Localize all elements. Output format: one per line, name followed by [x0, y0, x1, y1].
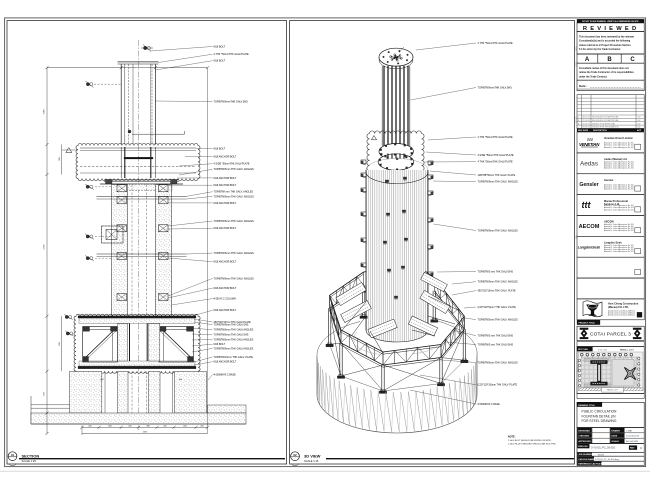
svg-text:SECTION: SECTION: [22, 453, 40, 458]
svg-text:9.012: 9.012: [575, 235, 577, 239]
svg-text:AECOM: AECOM: [604, 220, 613, 224]
svg-text:35342: 35342: [575, 62, 577, 67]
svg-text:TOP/BTM/6mm THK GALV.ANGLES: TOP/BTM/6mm THK GALV.ANGLES: [214, 338, 254, 341]
svg-text:M16 ANCHOR BOLT: M16 ANCHOR BOLT: [214, 202, 237, 205]
svg-text:4 THK *50mmTHK GALV.PLATE: 4 THK *50mmTHK GALV.PLATE: [214, 53, 250, 56]
svg-text:TOP/BTM/6mm THK GALV.ANGLES: TOP/BTM/6mm THK GALV.ANGLES: [214, 347, 254, 350]
svg-text:status referred to in Proj: status referred to in Project Procedure …: [579, 44, 631, 47]
svg-text:DWG NO: DWG NO: [578, 446, 588, 448]
svg-text:NOTE:: NOTE:: [508, 436, 516, 439]
svg-text:under the Trade Contract.: under the Trade Contract.: [579, 75, 608, 78]
svg-text:4 THK *50mmTHK GALV.PLATE: 4 THK *50mmTHK GALV.PLATE: [478, 136, 514, 139]
svg-text:1788: 1788: [44, 109, 46, 115]
svg-text:PUBLIC CIRCULATION: PUBLIC CIRCULATION: [582, 410, 618, 414]
svg-text:TOP/BTM/6mm THK GALV.ANGLES: TOP/BTM/6mm THK GALV.ANGLES: [214, 329, 254, 332]
svg-text:TOP/BTM/9mm THK GALV. ANGLES: TOP/BTM/9mm THK GALV. ANGLES: [478, 281, 519, 284]
svg-text:VENETIAN: VENETIAN: [579, 142, 600, 147]
svg-text:REVIEWED: REVIEWED: [583, 26, 640, 32]
svg-text:2700: 2700: [44, 244, 46, 250]
svg-text:TOP/BTM/6mm THK GALV. ANGLES: TOP/BTM/6mm THK GALV. ANGLES: [214, 168, 255, 171]
svg-text:FOR STEEL DRAWING: FOR STEEL DRAWING: [582, 419, 617, 423]
svg-text:# 600MM R.C BASE: # 600MM R.C BASE: [214, 373, 237, 376]
svg-text:Gensler: Gensler: [604, 178, 614, 182]
svg-text:TOP/BTM/6mmTHK GALV.SHS: TOP/BTM/6mmTHK GALV.SHS: [478, 86, 513, 89]
svg-text:Aedas (Macau) Ltd.: Aedas (Macau) Ltd.: [604, 157, 628, 161]
svg-text:M16 ANCHOR BOLT: M16 ANCHOR BOLT: [214, 261, 237, 264]
svg-text:M16 ANCHOR BOLT: M16 ANCHOR BOLT: [214, 155, 237, 158]
svg-text:4 SIDE *50mmTHK GALV.PLATE: 4 SIDE *50mmTHK GALV.PLATE: [214, 163, 250, 166]
svg-text:A: A: [585, 57, 590, 63]
svg-text:Gensler: Gensler: [579, 182, 598, 188]
svg-text:M16 ANCHOR BOLT: M16 ANCHOR BOLT: [214, 227, 237, 230]
svg-text:DESIGNED: DESIGNED: [578, 430, 590, 432]
svg-text:relieve the Trade Contractor o: relieve the Trade Contractor of its resp…: [579, 71, 635, 74]
svg-text:TOP/BTM/5 mm THK GALV.SHS: TOP/BTM/5 mm THK GALV.SHS: [478, 335, 514, 338]
svg-text:TOP/BTM/5 mm THK GALV.SHS: TOP/BTM/5 mm THK GALV.SHS: [478, 270, 514, 273]
svg-text:PROJECT TITLE: PROJECT TITLE: [579, 323, 596, 325]
svg-text:4 THK *50mmTHK GALV.PLATE: 4 THK *50mmTHK GALV.PLATE: [478, 42, 514, 45]
svg-text:TOP/BTM/6mm THK GALV. ANGLES: TOP/BTM/6mm THK GALV. ANGLES: [214, 252, 255, 255]
svg-text:ISSUED FOR INFORMATION: ISSUED FOR INFORMATION: [592, 126, 619, 129]
svg-text:LangdonSeah: LangdonSeah: [578, 245, 600, 249]
svg-text:TOP/BTM/5mm THK GALV. ANGLES: TOP/BTM/5mm THK GALV. ANGLES: [478, 319, 519, 322]
svg-text:TOP/BTM/ mm THK GALV. ANGLES: TOP/BTM/ mm THK GALV. ANGLES: [214, 191, 254, 194]
svg-text:P1808: P1808: [575, 46, 577, 51]
svg-text:12B/T/B*50mm THK GALV. PLATE: 12B/T/B*50mm THK GALV. PLATE: [478, 174, 516, 177]
svg-text:22.09.12: 22.09.12: [582, 120, 591, 122]
svg-text:REFERENCE CAD FILE NAME: REFERENCE CAD FILE NAME: [578, 462, 607, 465]
svg-text:M16 ANCHOR BOLT: M16 ANCHOR BOLT: [214, 361, 237, 364]
svg-text:AECOM: AECOM: [579, 224, 600, 230]
svg-text:Aedas: Aedas: [580, 161, 598, 168]
svg-text:CAD FILE NAME: CAD FILE NAME: [578, 458, 594, 461]
svg-text:M16 ANCHOR BOLT: M16 ANCHOR BOLT: [214, 287, 237, 290]
svg-text:2. ALL FILLET WELDED SHOULD BE: 2. ALL FILLET WELDED SHOULD BE 3mm THK.: [508, 442, 556, 445]
svg-text:# 600MM R.C BASE: # 600MM R.C BASE: [478, 403, 501, 406]
svg-text:SCALE 1:25: SCALE 1:25: [22, 459, 37, 463]
svg-text:1. ALL BOLT SHOULD BE FIXING O: 1. ALL BOLT SHOULD BE FIXING ON SITE.: [508, 439, 552, 442]
svg-text:(120*120*10)mm THK GALV. PLATE: (120*120*10)mm THK GALV. PLATE: [478, 384, 518, 387]
svg-text:M16 BOLT: M16 BOLT: [214, 60, 226, 63]
svg-text:450*220*10mm THK GALV. PLATE: 450*220*10mm THK GALV. PLATE: [478, 290, 516, 293]
svg-text:LW: LW: [638, 123, 641, 125]
svg-text:RE-ISSUED FOR APPROVAL: RE-ISSUED FOR APPROVAL: [592, 116, 620, 119]
svg-text:# 550 R.C COLUMN: # 550 R.C COLUMN: [214, 298, 236, 301]
svg-text:M16 ANCHOR BOLT: M16 ANCHOR BOLT: [214, 184, 237, 187]
svg-text:TOP/BTM/9mm THK GALV. ANGLES: TOP/BTM/9mm THK GALV. ANGLES: [478, 229, 519, 232]
svg-text:C: C: [640, 446, 642, 450]
svg-text:3D VIEW: 3D VIEW: [304, 453, 321, 458]
svg-text:FOUNTAIN DETAIL (IN: FOUNTAIN DETAIL (IN: [582, 414, 617, 418]
svg-text:08.10.12: 08.10.12: [582, 117, 591, 119]
svg-text:(120*120*5)mm THK GALV. PLATE: (120*120*5)mm THK GALV. PLATE: [478, 306, 517, 309]
svg-text:Consultant(s)(s) and is acc: Consultant(s)(s) and is accorded the fol…: [579, 40, 631, 43]
svg-text:CHECKED: CHECKED: [578, 436, 589, 438]
svg-text:KEY PLAN: KEY PLAN: [578, 348, 588, 351]
svg-text:zzz: zzz: [586, 137, 593, 142]
svg-text:APPROVED: APPROVED: [578, 440, 591, 443]
svg-text:ISSUED FOR APPROVAL: ISSUED FOR APPROVAL: [592, 122, 616, 125]
svg-text:4 THK *50mmTHK GALV.PLATE: 4 THK *50mmTHK GALV.PLATE: [478, 161, 514, 164]
svg-text:JOB NUMBER: JOB NUMBER: [578, 454, 592, 456]
svg-text:COTAI PARCEL 3: COTAI PARCEL 3: [590, 331, 631, 337]
svg-text:RE-ISSUED FOR APPROVAL: RE-ISSUED FOR APPROVAL: [592, 119, 620, 122]
svg-text:TOP/BTM/6mm THK GALV. ANGLES: TOP/BTM/6mm THK GALV. ANGLES: [214, 195, 255, 198]
svg-text:PARCEL 1, LOT 1: PARCEL 1, LOT 1: [620, 348, 634, 351]
svg-text:TOP/BTM/5 mm THK GALV.SHS: TOP/BTM/5 mm THK GALV.SHS: [478, 344, 514, 347]
svg-text:TOP/BTM/6mmTHK GALV.SHS: TOP/BTM/6mmTHK GALV.SHS: [214, 101, 249, 104]
svg-text:TOP/BTM/6mm THK GALV. ANGLES: TOP/BTM/6mm THK GALV. ANGLES: [214, 277, 255, 280]
svg-text:3-YS-05_PC_05-010.dwg: 3-YS-05_PC_05-010.dwg: [595, 459, 620, 461]
svg-text:TOP/BTM/6mm THK GALV. ANGLES: TOP/BTM/6mm THK GALV. ANGLES: [214, 220, 255, 223]
svg-text:TOP/BTM/6mm THK GALV.SHS: TOP/BTM/6mm THK GALV.SHS: [214, 334, 249, 337]
svg-text:ttt: ttt: [582, 200, 592, 210]
svg-text:4 SIDE *50mmTHK GALV.PLATE: 4 SIDE *50mmTHK GALV.PLATE: [478, 154, 514, 157]
svg-text:L.WAI: L.WAI: [626, 429, 632, 432]
svg-text:(Macau) CO. LTD.: (Macau) CO. LTD.: [608, 306, 629, 309]
svg-text:TOP/BTM/9mm THK GALV. ANGLES: TOP/BTM/9mm THK GALV. ANGLES: [478, 181, 519, 184]
svg-text:SCALE 1:15: SCALE 1:15: [304, 459, 319, 463]
svg-text:Consultant review of this: Consultant review of this document does …: [579, 67, 629, 70]
svg-text:TOP/BTM/10mm THK GALV. PLATE: TOP/BTM/10mm THK GALV. PLATE: [214, 356, 254, 359]
svg-text:SCALE: SCALE: [611, 440, 619, 443]
svg-text:DATE: DATE: [611, 435, 617, 438]
svg-text:TOP/BTM/5mm THK GALV. ANGLES: TOP/BTM/5mm THK GALV. ANGLES: [478, 361, 519, 364]
svg-text:01: 01: [11, 453, 15, 457]
svg-text:LW: LW: [638, 120, 641, 122]
svg-text:14-JUN-2013: 14-JUN-2013: [626, 436, 640, 438]
svg-text:M16 ANCHOR BOLT: M16 ANCHOR BOLT: [214, 309, 237, 312]
svg-text:M16 ANCHOR BOLT: M16 ANCHOR BOLT: [214, 177, 237, 180]
svg-text:This document has been reviewe: This document has been reviewed by the r…: [579, 35, 634, 38]
svg-text:AS SHOWN: AS SHOWN: [626, 440, 638, 443]
svg-text:C: C: [630, 57, 635, 63]
svg-text:Venetian Orient Limited: Venetian Orient Limited: [604, 136, 633, 140]
svg-text:REV: REV: [630, 448, 635, 450]
svg-text:3-YS-05_PC_05-010: 3-YS-05_PC_05-010: [591, 446, 616, 450]
svg-text:Date :: Date :: [579, 84, 587, 88]
svg-text:M16 BOLT: M16 BOLT: [214, 343, 226, 346]
svg-text:05.09.12: 05.09.12: [582, 123, 591, 125]
svg-text:B: B: [607, 57, 612, 63]
svg-text:5.4 for action by the Trade Co: 5.4 for action by the Trade Contractor.: [579, 48, 621, 51]
svg-text:DRAWING TITLE: DRAWING TITLE: [578, 404, 595, 407]
svg-text:M16 BOLT: M16 BOLT: [214, 148, 226, 151]
svg-text:DRAWN: DRAWN: [611, 429, 620, 432]
svg-text:N.T.S 1:100: N.T.S 1:100: [598, 349, 607, 351]
svg-text:Macau Professional: Macau Professional: [604, 199, 628, 203]
svg-text:TOP/BTM/6mm THK GALV.SHS: TOP/BTM/6mm THK GALV.SHS: [214, 324, 249, 327]
svg-text:M16 BOLT: M16 BOLT: [214, 45, 226, 48]
svg-text:LW: LW: [638, 117, 641, 119]
svg-text:DO NOT SCALE DRAWING. VERIFY A: DO NOT SCALE DRAWING. VERIFY ALL DIMENSI…: [582, 20, 639, 23]
svg-text:02: 02: [293, 453, 297, 457]
svg-text:Langdon Seah: Langdon Seah: [604, 241, 622, 245]
